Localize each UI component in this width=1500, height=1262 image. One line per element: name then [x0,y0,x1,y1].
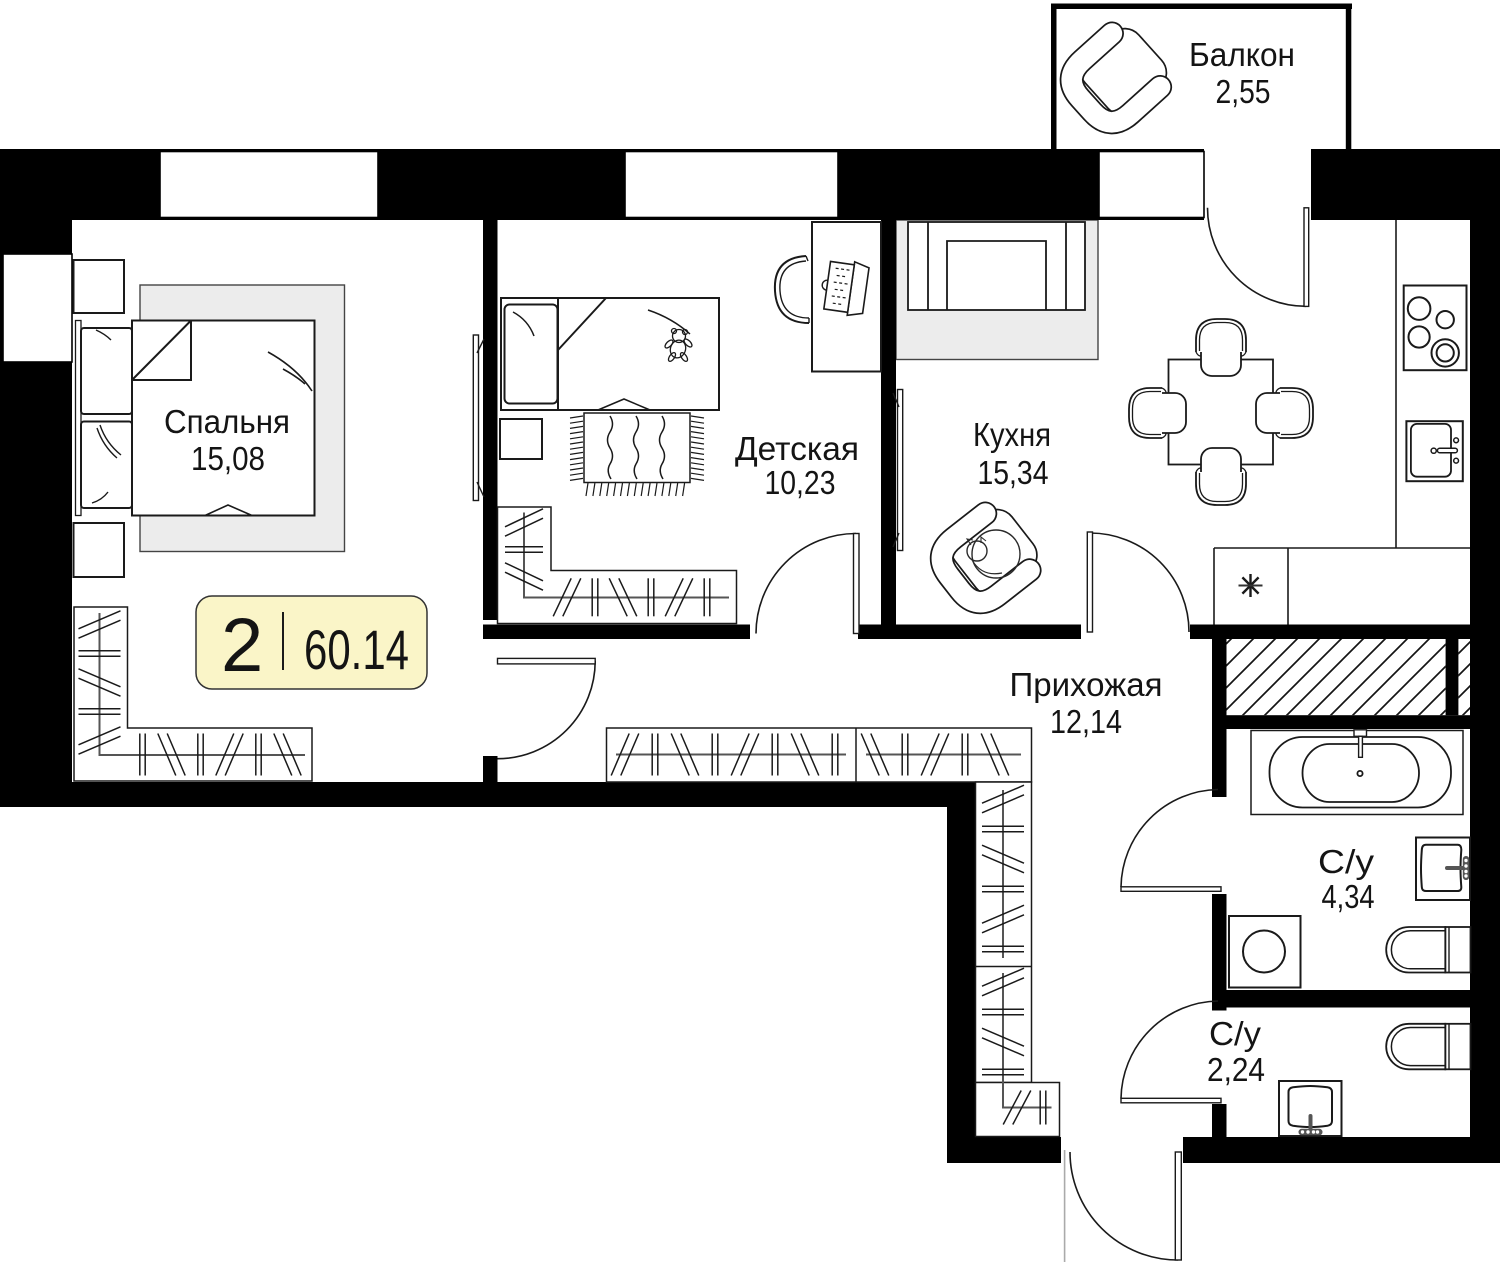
svg-text:10,23: 10,23 [765,464,836,501]
svg-text:С/у: С/у [1209,1015,1262,1052]
svg-text:2: 2 [221,603,263,688]
svg-text:Кухня: Кухня [973,416,1051,453]
svg-text:2,24: 2,24 [1207,1051,1265,1088]
svg-text:2,55: 2,55 [1216,73,1271,110]
svg-text:60.14: 60.14 [304,618,409,681]
svg-text:12,14: 12,14 [1050,703,1122,740]
svg-text:Прихожая: Прихожая [1010,666,1163,703]
svg-text:15,08: 15,08 [191,440,265,477]
svg-text:4,34: 4,34 [1322,878,1375,915]
svg-text:Детская: Детская [735,430,859,467]
svg-text:Спальня: Спальня [164,403,290,440]
svg-text:Балкон: Балкон [1189,36,1295,73]
svg-text:С/у: С/у [1318,843,1375,880]
svg-text:15,34: 15,34 [978,454,1049,491]
